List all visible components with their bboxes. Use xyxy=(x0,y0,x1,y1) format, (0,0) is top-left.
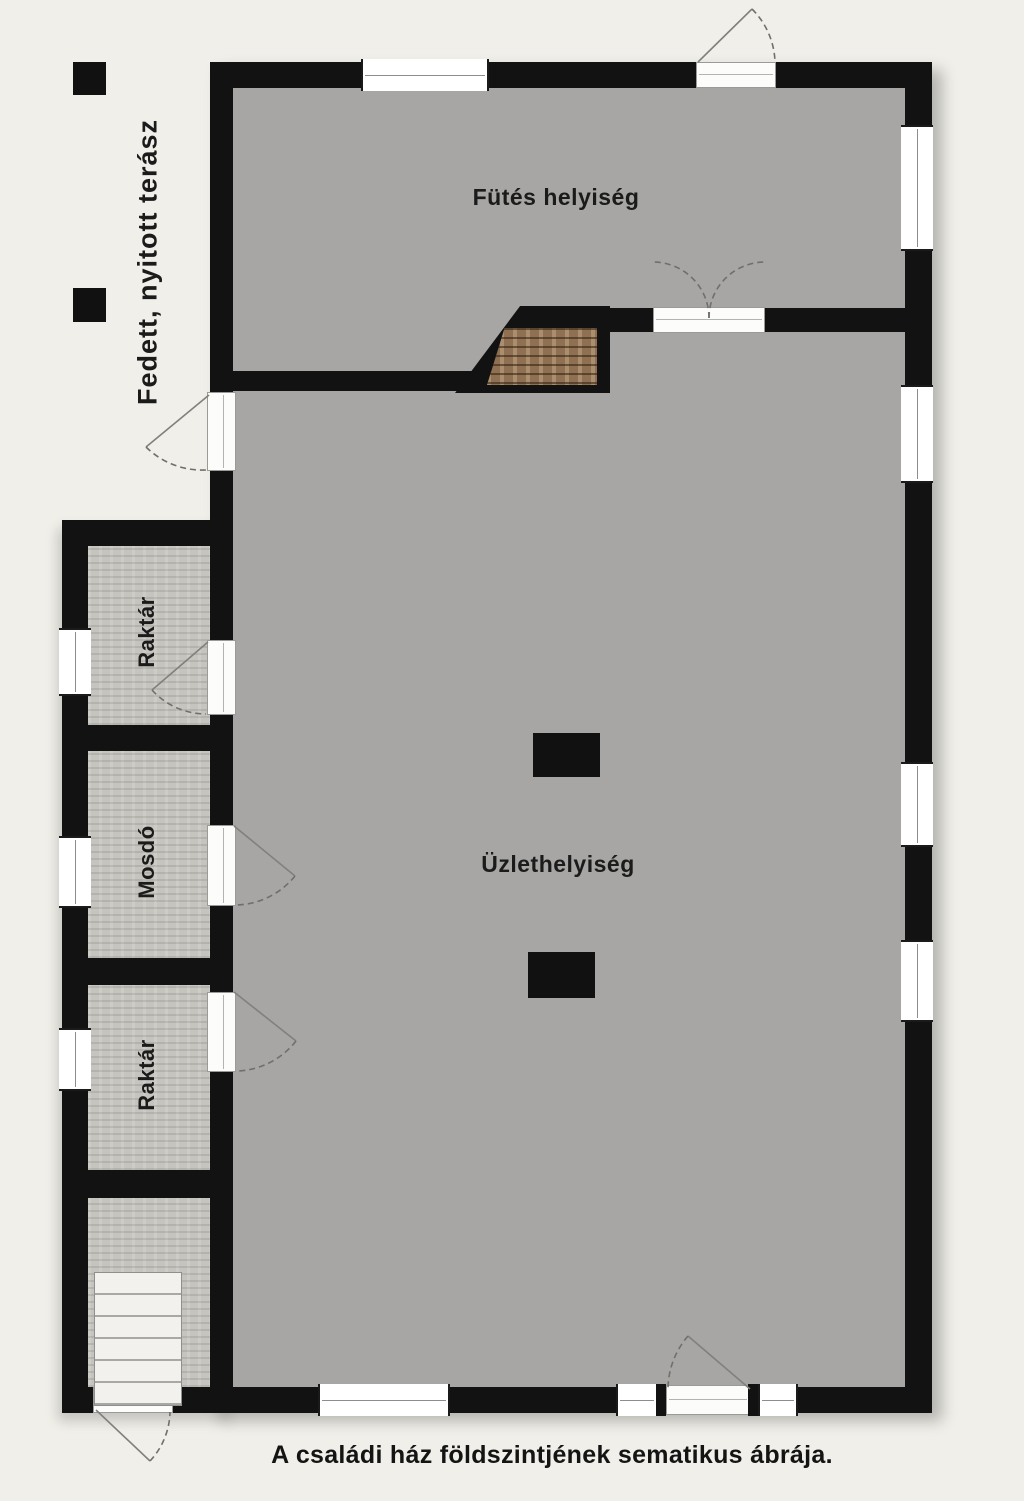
terrace-pillar-2 xyxy=(73,288,106,322)
room-label-shop: Üzlethelyiség xyxy=(408,851,708,878)
room-label-washroom: Mosdó xyxy=(134,825,160,898)
door-leaf-stair-exterior xyxy=(96,1410,150,1461)
shop-pillar-2 xyxy=(528,952,595,998)
plan-caption: A családi ház földszintjének sematikus á… xyxy=(152,1441,952,1470)
heating-room-wall-left xyxy=(233,371,473,391)
door-arc-top xyxy=(752,9,775,62)
window-top xyxy=(361,59,489,91)
window-right-2 xyxy=(901,385,933,483)
door-bottom-exterior xyxy=(666,1385,750,1415)
window-right-4 xyxy=(901,940,933,1022)
terrace-pillar-1 xyxy=(73,62,106,95)
wood-staircase xyxy=(455,306,610,393)
door-terrace xyxy=(207,392,236,471)
wall-right xyxy=(905,62,932,1413)
window-bottom-1 xyxy=(318,1384,450,1416)
floor-plan: Fütés helyiség Üzlethelyiség Raktár Mosd… xyxy=(0,0,1024,1501)
window-bottom-2 xyxy=(616,1384,658,1416)
room-label-storage-lower: Raktár xyxy=(134,1039,160,1110)
staircase-steps xyxy=(487,328,597,385)
terrace-label: Fedett, nyitott terász xyxy=(133,119,164,405)
bottom-door-post-1 xyxy=(656,1384,666,1416)
shop-pillar-1 xyxy=(533,733,600,777)
room-label-storage-upper: Raktár xyxy=(134,596,160,667)
room-label-heating: Fütés helyiség xyxy=(406,184,706,211)
bottom-door-post-2 xyxy=(748,1384,758,1416)
door-leaf-top xyxy=(698,9,752,62)
window-right-1 xyxy=(901,125,933,251)
window-annex-3 xyxy=(59,1028,91,1091)
annex-divider-wall-1 xyxy=(88,725,233,751)
window-annex-2 xyxy=(59,836,91,908)
door-storage-lower xyxy=(207,992,236,1072)
annex-wall-top xyxy=(62,520,233,546)
staircase-annex xyxy=(94,1272,182,1406)
annex-divider-wall-3 xyxy=(88,1170,233,1198)
window-bottom-3 xyxy=(758,1384,798,1416)
heating-room-wall-right xyxy=(763,308,905,332)
door-heating-double xyxy=(653,307,765,333)
door-washroom xyxy=(207,825,236,906)
door-arc-terrace xyxy=(146,447,206,470)
window-annex-1 xyxy=(59,628,91,696)
heating-room-wall-mid xyxy=(610,308,655,332)
door-top-exterior xyxy=(696,62,776,88)
window-right-3 xyxy=(901,762,933,847)
annex-divider-wall-2 xyxy=(88,958,233,985)
door-storage-upper xyxy=(207,640,236,715)
wall-top xyxy=(210,62,932,88)
